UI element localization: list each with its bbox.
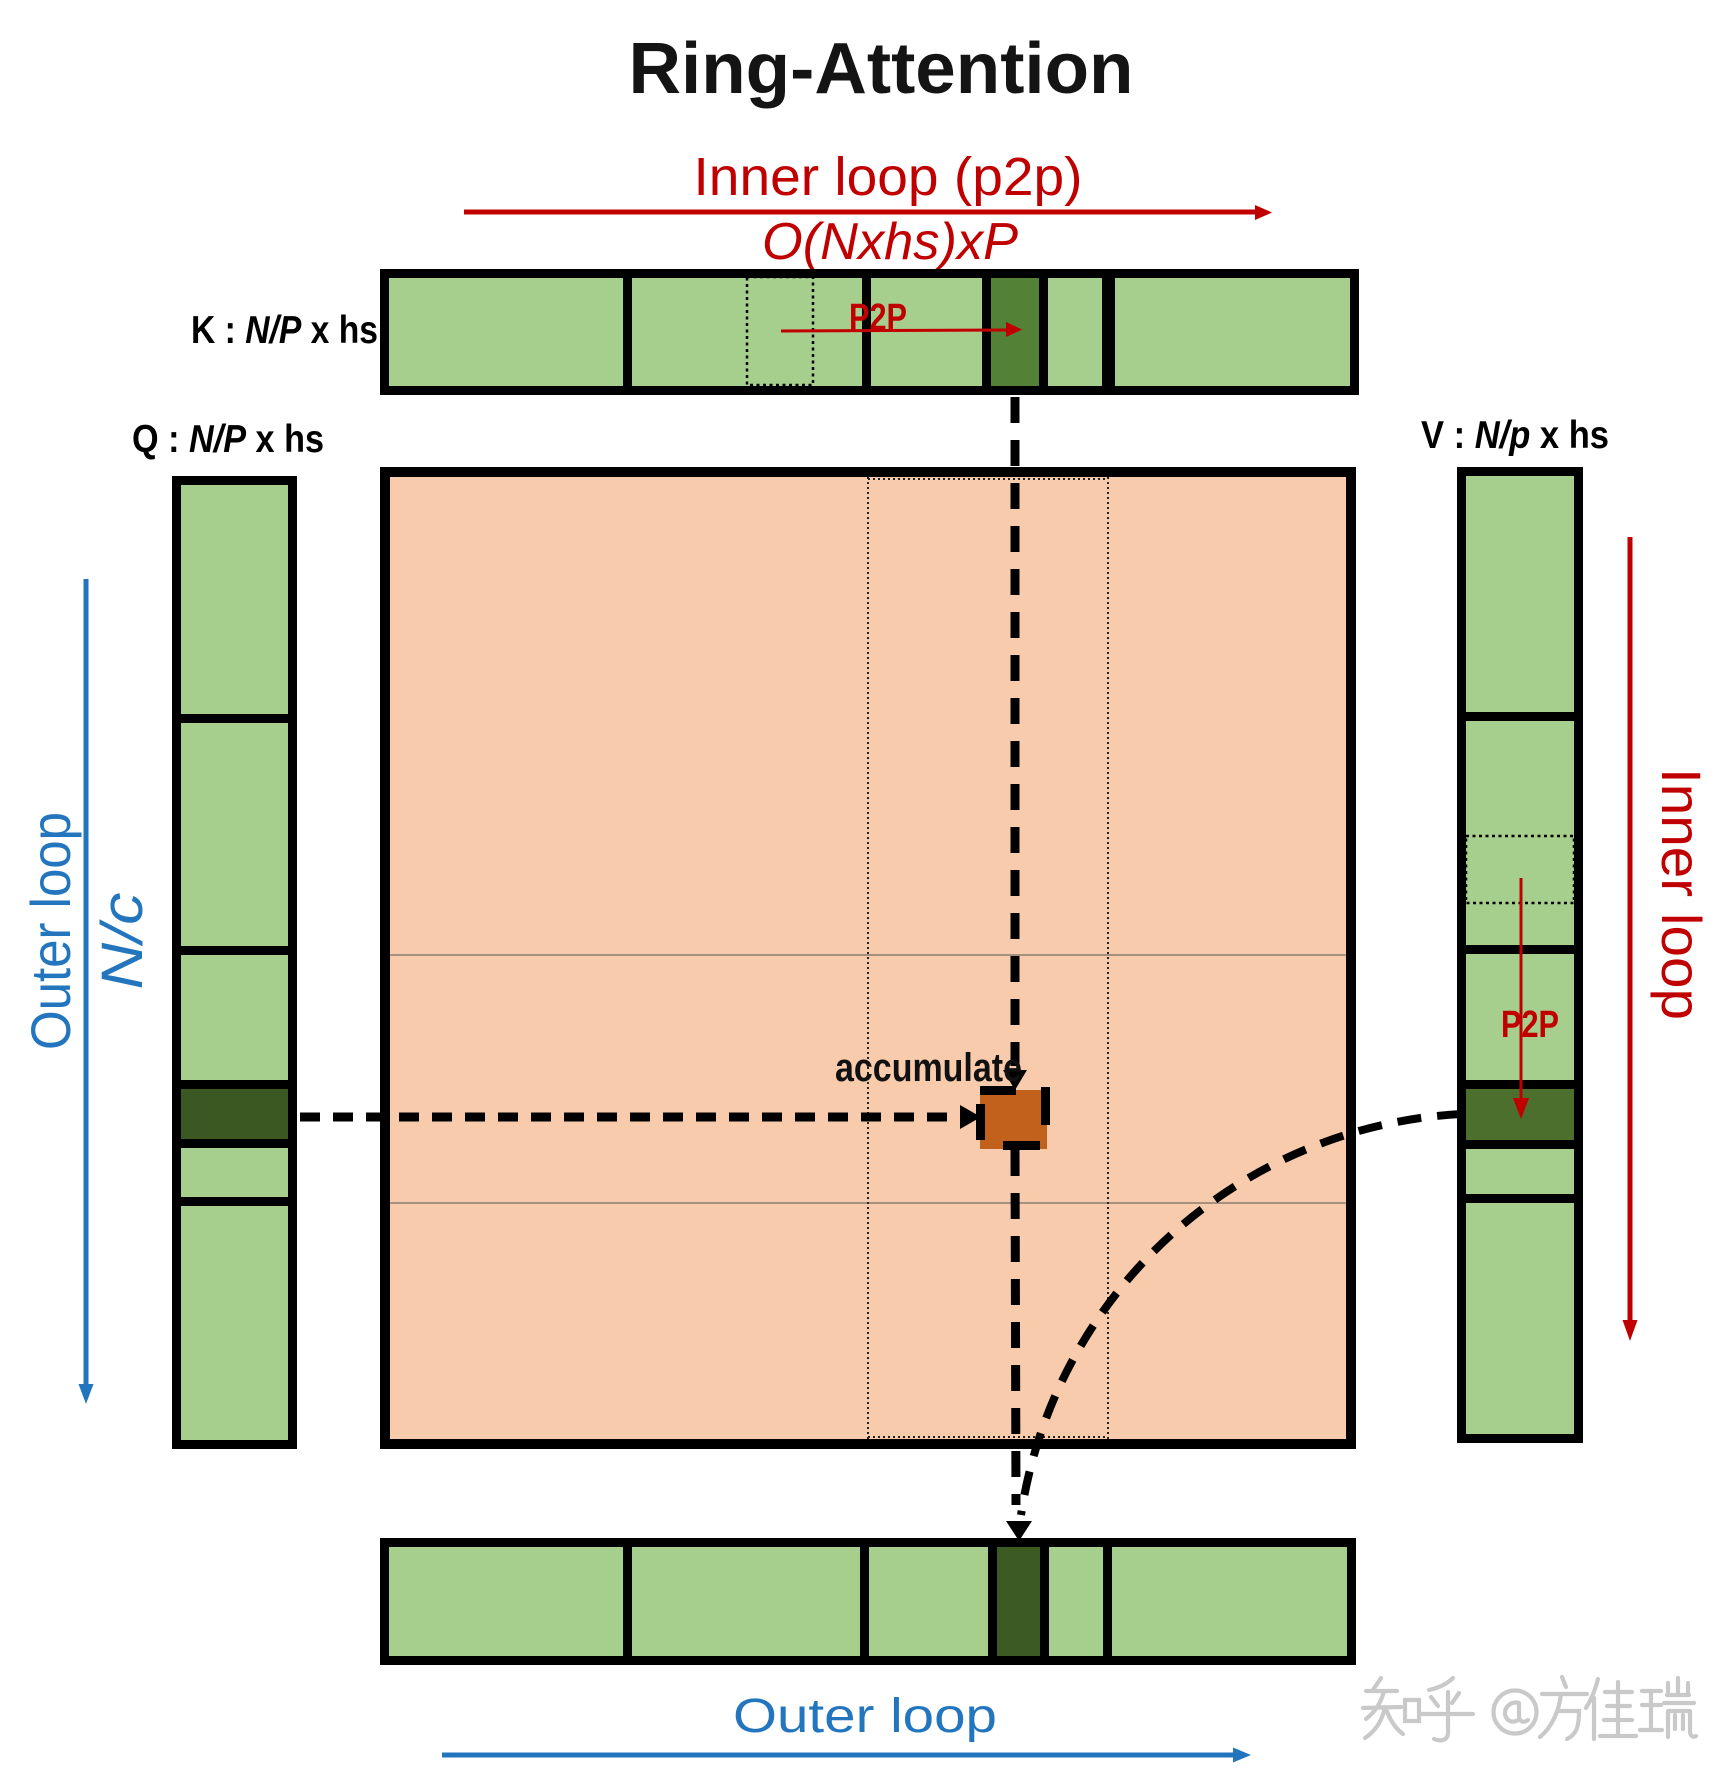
svg-text:P2P: P2P [849,297,907,339]
svg-text:K : N/P x hs: K : N/P x hs [191,309,378,352]
svg-text:P2P: P2P [1501,1004,1559,1046]
svg-text:Outer loop: Outer loop [733,1690,997,1743]
svg-text:Outer loop: Outer loop [19,812,82,1050]
svg-text:O(Nxhs)xP: O(Nxhs)xP [762,213,1018,271]
svg-text:Inner loop: Inner loop [1650,768,1713,1020]
svg-text:Q : N/P x hs: Q : N/P x hs [132,418,324,461]
svg-text:N/c: N/c [90,893,155,990]
svg-text:Inner loop (p2p): Inner loop (p2p) [694,147,1083,207]
svg-text:accumulate: accumulate [835,1046,1022,1090]
svg-text:V : N/p x hs: V : N/p x hs [1421,414,1609,457]
svg-text:Ring-Attention: Ring-Attention [629,29,1134,109]
